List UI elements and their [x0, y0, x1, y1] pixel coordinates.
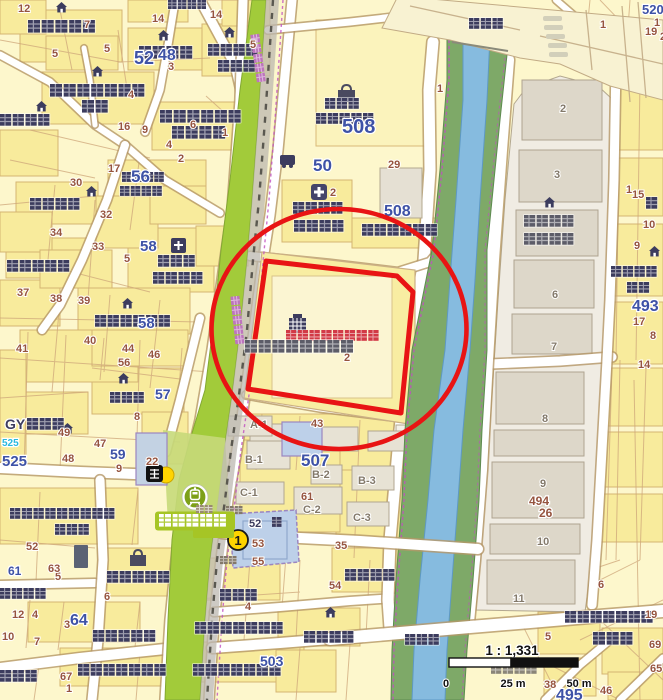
svg-text:2: 2 — [344, 352, 350, 364]
svg-text:12: 12 — [12, 609, 24, 621]
svg-text:3: 3 — [554, 169, 560, 181]
svg-text:9: 9 — [116, 463, 122, 475]
svg-text:2: 2 — [330, 187, 336, 199]
svg-text:52: 52 — [134, 48, 154, 68]
svg-text:61: 61 — [301, 491, 313, 503]
svg-text:520: 520 — [642, 2, 663, 17]
svg-text:54: 54 — [329, 580, 342, 592]
svg-text:507: 507 — [301, 451, 329, 470]
svg-text:0: 0 — [443, 678, 449, 690]
svg-text:17: 17 — [108, 163, 120, 175]
svg-text:1: 1 — [600, 19, 606, 31]
svg-text:50: 50 — [313, 156, 332, 175]
svg-text:67: 67 — [60, 671, 72, 683]
svg-text:1: 1 — [437, 83, 443, 95]
svg-text:46: 46 — [600, 685, 612, 697]
svg-text:4: 4 — [32, 609, 39, 621]
svg-text:58: 58 — [140, 238, 157, 255]
svg-text:525: 525 — [2, 453, 27, 470]
svg-text:58: 58 — [138, 315, 155, 332]
svg-text:41: 41 — [16, 343, 28, 355]
svg-text:10: 10 — [643, 219, 655, 231]
svg-text:29: 29 — [388, 159, 400, 171]
svg-text:61: 61 — [8, 564, 22, 578]
svg-text:525: 525 — [2, 438, 19, 449]
svg-text:11: 11 — [513, 593, 525, 605]
svg-text:1: 1 — [654, 17, 660, 29]
svg-text:43: 43 — [311, 418, 323, 430]
svg-text:2: 2 — [560, 103, 566, 115]
svg-text:2: 2 — [178, 153, 184, 165]
svg-text:57: 57 — [155, 386, 171, 402]
svg-text:55: 55 — [252, 556, 264, 568]
svg-text:22: 22 — [146, 456, 158, 468]
svg-text:15: 15 — [632, 189, 644, 201]
svg-text:69: 69 — [649, 639, 661, 651]
svg-text:7: 7 — [84, 19, 90, 31]
svg-text:46: 46 — [148, 349, 160, 361]
svg-text:32: 32 — [100, 209, 112, 221]
svg-text:3: 3 — [64, 619, 70, 631]
svg-text:9: 9 — [634, 240, 640, 252]
svg-text:5: 5 — [124, 253, 130, 265]
svg-text:52: 52 — [26, 541, 38, 553]
svg-text:6: 6 — [104, 591, 110, 603]
svg-text:508: 508 — [342, 116, 375, 138]
svg-text:503: 503 — [260, 653, 284, 669]
svg-text:33: 33 — [92, 241, 104, 253]
svg-text:5: 5 — [250, 39, 256, 51]
svg-text:493: 493 — [632, 298, 659, 315]
svg-text:10: 10 — [2, 631, 14, 643]
svg-text:4: 4 — [166, 139, 173, 151]
svg-text:47: 47 — [94, 438, 106, 450]
svg-text:6: 6 — [552, 289, 558, 301]
svg-text:1: 1 — [66, 683, 72, 695]
svg-text:GY: GY — [5, 416, 26, 432]
svg-text:9: 9 — [540, 478, 546, 490]
svg-text:34: 34 — [50, 227, 63, 239]
svg-text:B-2: B-2 — [312, 469, 330, 481]
svg-text:C-3: C-3 — [353, 512, 371, 524]
svg-text:5: 5 — [104, 43, 110, 55]
svg-text:7: 7 — [34, 636, 40, 648]
svg-text:9: 9 — [142, 124, 148, 136]
svg-text:6: 6 — [190, 119, 196, 131]
svg-text:1: 1 — [626, 184, 632, 196]
svg-text:17: 17 — [633, 316, 645, 328]
svg-text:50 m: 50 m — [566, 678, 591, 690]
svg-text:B-1: B-1 — [245, 454, 263, 466]
svg-text:44: 44 — [122, 343, 135, 355]
svg-text:63: 63 — [48, 563, 60, 575]
svg-text:7: 7 — [551, 341, 557, 353]
svg-text:10: 10 — [537, 536, 549, 548]
svg-text:1: 1 — [234, 533, 241, 548]
svg-text:39: 39 — [78, 295, 90, 307]
svg-text:26: 26 — [539, 506, 553, 520]
svg-text:65: 65 — [650, 663, 662, 675]
svg-text:53: 53 — [252, 538, 264, 550]
svg-text:5: 5 — [545, 631, 551, 643]
svg-text:49: 49 — [58, 427, 70, 439]
svg-text:56: 56 — [118, 357, 130, 369]
svg-text:3: 3 — [168, 61, 174, 73]
svg-text:30: 30 — [70, 177, 82, 189]
svg-text:25 m: 25 m — [500, 678, 525, 690]
svg-text:4: 4 — [128, 89, 135, 101]
svg-text:40: 40 — [84, 335, 96, 347]
svg-text:48: 48 — [62, 453, 74, 465]
svg-text:16: 16 — [118, 121, 130, 133]
svg-text:5: 5 — [52, 48, 58, 60]
svg-text:14: 14 — [638, 359, 651, 371]
svg-text:8: 8 — [542, 413, 548, 425]
svg-text:6: 6 — [598, 579, 604, 591]
svg-text:56: 56 — [131, 167, 150, 186]
svg-text:1: 1 — [222, 127, 228, 139]
svg-text:C-1: C-1 — [240, 487, 258, 499]
svg-text:35: 35 — [335, 540, 347, 552]
svg-text:14: 14 — [210, 9, 223, 21]
svg-text:38: 38 — [544, 679, 556, 691]
svg-text:12: 12 — [18, 3, 30, 15]
svg-text:8: 8 — [134, 411, 140, 423]
svg-text:37: 37 — [17, 287, 29, 299]
svg-text:C-2: C-2 — [303, 504, 321, 516]
svg-text:14: 14 — [152, 13, 165, 25]
svg-text:1 : 1,331: 1 : 1,331 — [485, 643, 539, 658]
svg-text:64: 64 — [70, 612, 88, 629]
svg-text:8: 8 — [650, 330, 656, 342]
svg-text:4: 4 — [245, 601, 252, 613]
svg-text:19: 19 — [645, 609, 657, 621]
svg-text:59: 59 — [110, 446, 126, 462]
svg-text:52: 52 — [249, 518, 261, 530]
svg-text:B-3: B-3 — [358, 475, 376, 487]
svg-text:38: 38 — [50, 293, 62, 305]
